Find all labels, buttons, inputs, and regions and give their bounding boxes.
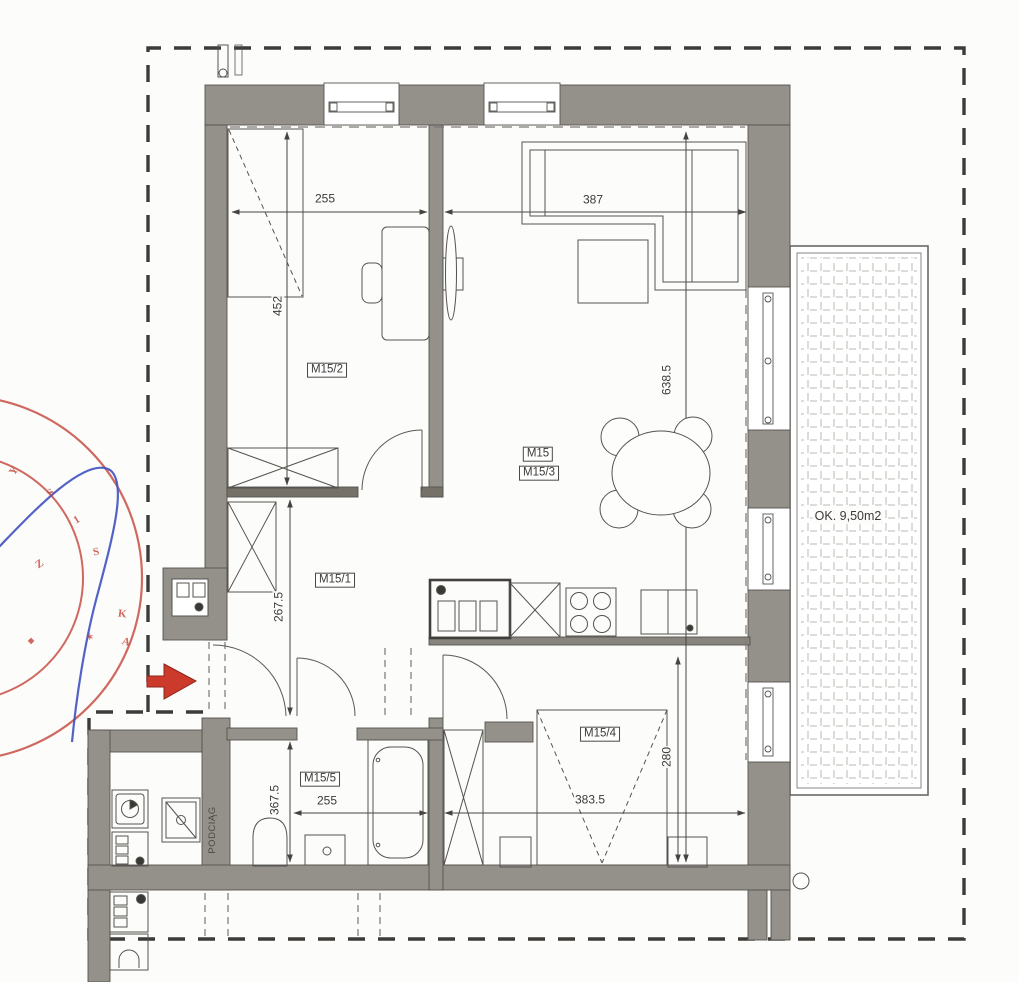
- dashed-lines: [205, 127, 746, 936]
- coffee-table: [578, 240, 648, 303]
- wall-stub-bottom-right-b: [771, 890, 790, 940]
- wing-cabinet-upper: [112, 832, 148, 866]
- signature-curve: [0, 468, 118, 742]
- bathtub: [368, 740, 428, 865]
- room-label-m15-4: M15/4: [580, 727, 620, 742]
- stamp-glyph: ✶: [86, 632, 94, 643]
- dim-label-bedroom2-width: 255: [314, 192, 336, 205]
- shower: [162, 798, 200, 842]
- wall-bathroom-right: [429, 718, 443, 890]
- room-label-m15: M15: [523, 447, 553, 462]
- room-label-m15-1: M15/1: [315, 573, 355, 588]
- door-bathroom: [297, 658, 355, 716]
- walls: [88, 85, 790, 982]
- dining-set: [600, 417, 712, 528]
- vent-pipe: [218, 45, 242, 77]
- nightstand-right: [668, 837, 707, 867]
- wall-bathroom-top-right: [357, 728, 443, 740]
- stamp-circles: [0, 396, 142, 760]
- survey-point: [793, 873, 809, 889]
- kitchen-cabinet-x: [510, 583, 560, 637]
- window-top-1: [324, 83, 399, 125]
- toilet: [253, 818, 287, 866]
- wall-bedroom-stub: [485, 722, 533, 742]
- wing-cabinet-lower: [110, 892, 148, 932]
- dim-label-bath-height: 367.5: [268, 784, 281, 816]
- dim-label-bath-width: 255: [316, 794, 338, 807]
- kitchen-appliance: [430, 580, 510, 638]
- wing-hob: [112, 790, 148, 828]
- room-label-m15-5: M15/5: [300, 772, 340, 787]
- balcony-door-2: [748, 508, 790, 590]
- dim-label-living-height: 638.5: [660, 364, 673, 396]
- washbasin: [305, 835, 345, 865]
- desk-chair: [362, 263, 382, 303]
- door-bedroom2: [362, 430, 422, 490]
- tv: [443, 226, 463, 320]
- dim-label-hall-height: 267.5: [272, 591, 285, 623]
- dim-label-living-width: 387: [582, 193, 604, 206]
- wall-right: [748, 125, 790, 890]
- floorplan-scan: M15/2 M15 M15/3 M15/1 M15/4 M15/5 255 38…: [0, 0, 1018, 982]
- dim-label-bedroom1-height: 280: [660, 746, 673, 768]
- corner-sofa: [522, 142, 746, 290]
- balcony-area-label: OK. 9,50m2: [813, 510, 884, 524]
- wardrobe-hall: [228, 502, 276, 592]
- stamp-glyph: ◆: [28, 636, 34, 645]
- wall-wing-left: [88, 730, 110, 982]
- wall-partition-bedroom2: [429, 125, 443, 497]
- kitchen-hob: [566, 588, 616, 636]
- dining-table: [612, 431, 710, 515]
- kitchen-sink: [641, 590, 697, 634]
- wardrobe-bedroom2: [228, 129, 303, 297]
- door-bedroom1: [443, 655, 507, 719]
- dim-label-bedroom2-height: 452: [271, 295, 284, 317]
- dim-label-bedroom1-width: 383.5: [574, 793, 606, 806]
- wall-thin-cap: [421, 487, 443, 497]
- wardrobe-bedroom2-low: [228, 448, 338, 488]
- windows: [324, 83, 790, 762]
- room-label-m15-2: M15/2: [307, 363, 347, 378]
- wall-bathroom-top-left: [227, 728, 297, 740]
- entry-arrow-icon: [147, 664, 196, 699]
- balcony-door-1: [748, 287, 790, 430]
- desk: [382, 227, 429, 340]
- wall-left-upper: [205, 125, 227, 640]
- window-right: [748, 682, 790, 762]
- room-label-m15-3: M15/3: [519, 466, 559, 481]
- wall-stub-bottom-right-a: [748, 890, 767, 940]
- door-swings: [213, 430, 507, 719]
- beam-label: PODCIĄG: [208, 806, 218, 853]
- nightstand-left: [500, 837, 531, 867]
- wall-left-lower: [202, 718, 230, 890]
- floorplan-drawing: [0, 0, 1018, 982]
- window-top-2: [484, 83, 560, 125]
- stamp-glyph: K: [117, 607, 127, 620]
- cabinet-bedroom1: [444, 730, 483, 865]
- meter-box: [172, 579, 208, 616]
- door-entry: [213, 645, 286, 716]
